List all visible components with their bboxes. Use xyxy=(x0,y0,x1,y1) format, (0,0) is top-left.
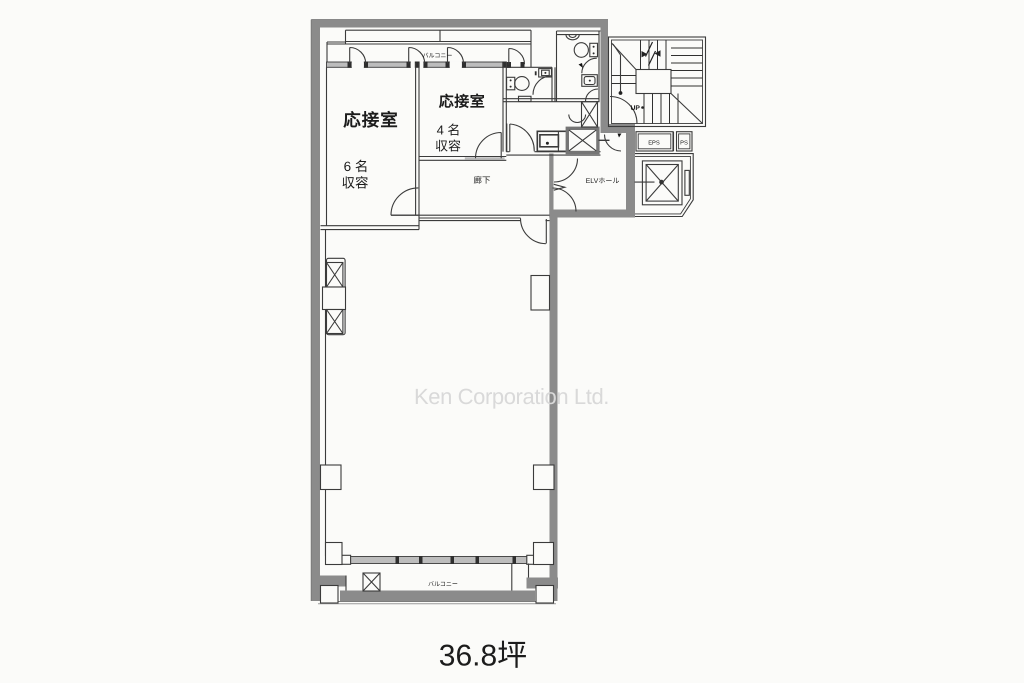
svg-text:Ken Corporation Ltd.: Ken Corporation Ltd. xyxy=(414,384,609,409)
svg-text:4 名: 4 名 xyxy=(437,123,461,138)
svg-text:EPS: EPS xyxy=(648,139,660,146)
svg-text:応接室: 応接室 xyxy=(439,93,486,111)
svg-text:応接室: 応接室 xyxy=(343,110,399,130)
svg-text:36.8坪: 36.8坪 xyxy=(439,640,527,673)
svg-text:収容: 収容 xyxy=(342,176,369,191)
svg-text:バルコニー: バルコニー xyxy=(428,581,458,588)
svg-text:ELVホール: ELVホール xyxy=(586,177,620,185)
svg-text:UP: UP xyxy=(631,105,641,112)
svg-text:6 名: 6 名 xyxy=(344,159,369,174)
svg-text:収容: 収容 xyxy=(435,139,461,154)
svg-text:バルコニー: バルコニー xyxy=(423,53,453,60)
svg-text:廊下: 廊下 xyxy=(473,175,491,185)
svg-text:PS: PS xyxy=(680,139,688,146)
